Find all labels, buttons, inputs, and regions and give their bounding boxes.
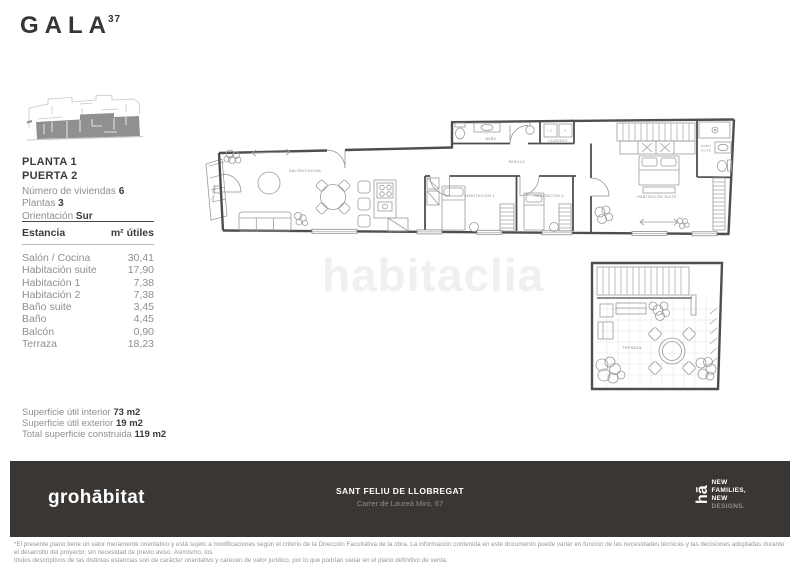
table-row: Baño4,45 bbox=[22, 313, 154, 325]
table-row: Habitación 17,38 bbox=[22, 277, 154, 289]
feature-plantas: Plantas 3 bbox=[22, 198, 124, 210]
col-m2: m² útiles bbox=[111, 227, 154, 239]
habitaclia-watermark: habitaclia bbox=[322, 248, 544, 302]
main-floorplan-drawing: BALCÓN SALÓN/COCINA BAÑO LAVADERO L.S. A… bbox=[202, 96, 747, 246]
planta-label: PLANTA 1 bbox=[22, 156, 78, 170]
gala-logo-number: 37 bbox=[108, 14, 121, 25]
new-families-logo: hā NEW FAMILIES, NEW DESIGNS. bbox=[694, 479, 746, 511]
site-key-plan bbox=[22, 92, 152, 154]
ha-icon: hā bbox=[694, 486, 712, 504]
rooms-table-header: Estancia m² útiles bbox=[22, 221, 154, 245]
room-label-lavadero: LAVADERO bbox=[548, 139, 568, 143]
room-label-suite: HABITACIÓN SUITE bbox=[637, 194, 677, 199]
plant bbox=[596, 357, 625, 383]
living-kitchen-furniture bbox=[224, 149, 408, 231]
room-label-hab2: HABITACIÓN 2 bbox=[534, 193, 564, 198]
puerta-label: PUERTA 2 bbox=[22, 170, 78, 184]
footer-tagline: NEW FAMILIES, NEW DESIGNS. bbox=[712, 479, 746, 511]
plant bbox=[595, 206, 613, 224]
label-ls: L.S. bbox=[547, 129, 553, 133]
main-floorplan: BALCÓN SALÓN/COCINA BAÑO LAVADERO L.S. A… bbox=[202, 96, 747, 246]
terrace-plan-drawing: TERRAZA bbox=[588, 252, 738, 402]
highlighted-unit bbox=[36, 113, 140, 139]
footer-address: Carrer de Laureà Miró, 67 bbox=[336, 499, 464, 508]
terrace-furniture bbox=[596, 302, 716, 383]
col-estancia: Estancia bbox=[22, 227, 65, 239]
table-row: Salón / Cocina30,41 bbox=[22, 252, 154, 264]
room-label-bano-suite-2: SUITE bbox=[701, 149, 711, 153]
table-row: Balcón0,90 bbox=[22, 326, 154, 338]
summary-total: Total superficie construida 119 m2 bbox=[22, 429, 166, 440]
footer-location: SANT FELIU DE LLOBREGAT Carrer de Laureà… bbox=[336, 486, 464, 508]
disclaimer-line1: *El presente plano tiene un valor merame… bbox=[14, 541, 788, 557]
plant bbox=[294, 212, 307, 225]
interior-walls bbox=[425, 121, 731, 232]
legal-disclaimer: *El presente plano tiene un valor merame… bbox=[14, 541, 788, 564]
doors bbox=[223, 126, 609, 197]
room-label-balcon: BALCÓN bbox=[210, 184, 217, 201]
floorplan-sheet: GALA37 PLANTA 1 PUERTA 2 Número de vivie… bbox=[0, 0, 800, 565]
summary-exterior: Superficie útil exterior 19 m2 bbox=[22, 418, 166, 429]
room-label-salon: SALÓN/COCINA bbox=[289, 168, 321, 173]
summary-interior: Superficie útil interior 73 m2 bbox=[22, 407, 166, 418]
table-row: Habitación 27,38 bbox=[22, 289, 154, 301]
gala-logo: GALA37 bbox=[20, 12, 121, 40]
room-label-pasillo: PASILLO bbox=[509, 160, 526, 164]
room-label-bano: BAÑO bbox=[486, 136, 497, 141]
rooms-table-body: Salón / Cocina30,41 Habitación suite17,9… bbox=[22, 252, 154, 350]
unit-id: PLANTA 1 PUERTA 2 bbox=[22, 156, 78, 183]
table-row: Baño suite3,45 bbox=[22, 301, 154, 313]
surface-summary: Superficie útil interior 73 m2 Superfici… bbox=[22, 407, 166, 440]
footer-bar: grohābitat SANT FELIU DE LLOBREGAT Carre… bbox=[10, 461, 790, 537]
gala-logo-text: GALA bbox=[20, 12, 112, 39]
bedroom1-furniture bbox=[427, 178, 514, 232]
room-label-terraza: TERRAZA bbox=[622, 346, 642, 350]
disclaimer-line2: títulos descriptivos de las distintas es… bbox=[14, 557, 788, 565]
plant bbox=[649, 302, 670, 321]
bedroom2-furniture bbox=[524, 193, 571, 232]
table-row: Terraza18,23 bbox=[22, 338, 154, 350]
room-label-bano-suite-1: BAÑO bbox=[701, 143, 711, 148]
table-row: Habitación suite17,90 bbox=[22, 264, 154, 276]
label-a: A bbox=[564, 129, 566, 133]
rooms-table: Estancia m² útiles Salón / Cocina30,41 H… bbox=[22, 221, 154, 350]
terrace-pergola bbox=[597, 267, 717, 364]
grohabitat-logo: grohābitat bbox=[48, 487, 145, 509]
unit-features: Número de viviendas 6 Plantas 3 Orientac… bbox=[22, 186, 124, 223]
footer-city: SANT FELIU DE LLOBREGAT bbox=[336, 486, 464, 496]
site-key-plan-drawing bbox=[22, 92, 152, 154]
plant bbox=[677, 218, 689, 228]
terrace-tiles bbox=[596, 298, 715, 387]
terrace-plan: TERRAZA bbox=[588, 252, 738, 402]
feature-viviendas: Número de viviendas 6 bbox=[22, 186, 124, 198]
room-label-hab1: HABITACIÓN 1 bbox=[465, 193, 495, 198]
bathroom-laundry-fixtures bbox=[455, 122, 572, 139]
